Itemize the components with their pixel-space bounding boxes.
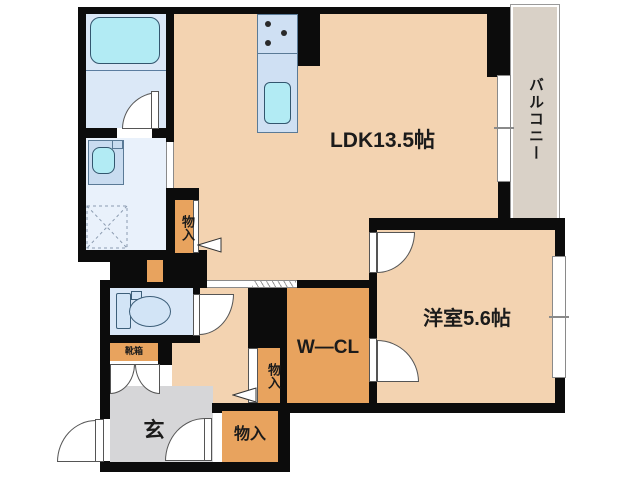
wall — [278, 403, 290, 472]
label-storage-genkan: 物入 — [258, 351, 280, 401]
storage-hall-arrow — [197, 237, 222, 253]
kitchen-sink — [264, 82, 291, 124]
wall — [555, 230, 565, 256]
wall — [498, 180, 510, 228]
storage-genkan-arrow — [232, 387, 257, 403]
wall — [555, 378, 565, 404]
kitchen-divider — [257, 53, 298, 54]
door-leaf-wcl — [369, 338, 377, 382]
door-washroom-sliding — [166, 142, 174, 188]
room-ldk — [172, 14, 500, 218]
door-leaf-entrance — [95, 419, 104, 462]
wall — [166, 188, 199, 200]
wall — [110, 335, 200, 343]
label-ldk: LDK13.5帖 — [285, 130, 480, 152]
toilet-bowl — [129, 296, 171, 327]
label-western-room: 洋室5.6帖 — [378, 309, 556, 330]
bathroom-divider — [86, 70, 166, 71]
stove-burner-3 — [265, 40, 271, 46]
door-gap-bathroom — [117, 128, 152, 138]
label-shoe-box: 靴箱 — [110, 347, 158, 356]
room-ldk-lower — [197, 218, 369, 280]
label-walk-in-closet: W—CL — [287, 338, 369, 358]
label-storage-entrance: 物入 — [222, 427, 278, 444]
wall — [78, 7, 510, 14]
wall — [100, 280, 110, 419]
washing-machine-pan — [86, 205, 128, 249]
wall — [152, 128, 166, 138]
floor-plan: LDK13.5帖 洋室5.6帖 バルコニー W—CL 玄 物入 物入 物入 靴箱 — [0, 0, 640, 480]
wall — [280, 288, 287, 403]
wall — [166, 14, 174, 142]
wall — [487, 7, 510, 77]
door-leaf-bathroom — [151, 91, 159, 129]
bathtub — [90, 17, 160, 64]
pipe-space — [147, 260, 163, 282]
washbasin-bowl — [92, 147, 115, 174]
label-entrance: 玄 — [130, 420, 178, 442]
wall — [297, 280, 377, 288]
stove-burner-2 — [281, 30, 287, 36]
stove-burner-1 — [265, 21, 271, 27]
opening-ldk-hall-hatch — [252, 281, 296, 287]
door-leaf-western — [369, 232, 377, 273]
wall — [158, 343, 172, 365]
window-balcony-tick — [494, 127, 514, 129]
label-balcony: バルコニー — [519, 54, 543, 184]
wall — [100, 462, 290, 472]
label-storage-hall: 物入 — [174, 204, 194, 252]
door-arc-entrance — [57, 420, 96, 462]
wall — [369, 218, 565, 230]
wall — [369, 218, 377, 232]
wall — [298, 14, 320, 66]
wall — [369, 273, 377, 338]
wall — [280, 403, 565, 413]
hallway-lower — [172, 343, 200, 388]
wall — [369, 382, 377, 403]
wall — [78, 128, 117, 138]
washbasin-faucet — [112, 140, 123, 149]
door-leaf-storage-entrance — [204, 418, 212, 461]
